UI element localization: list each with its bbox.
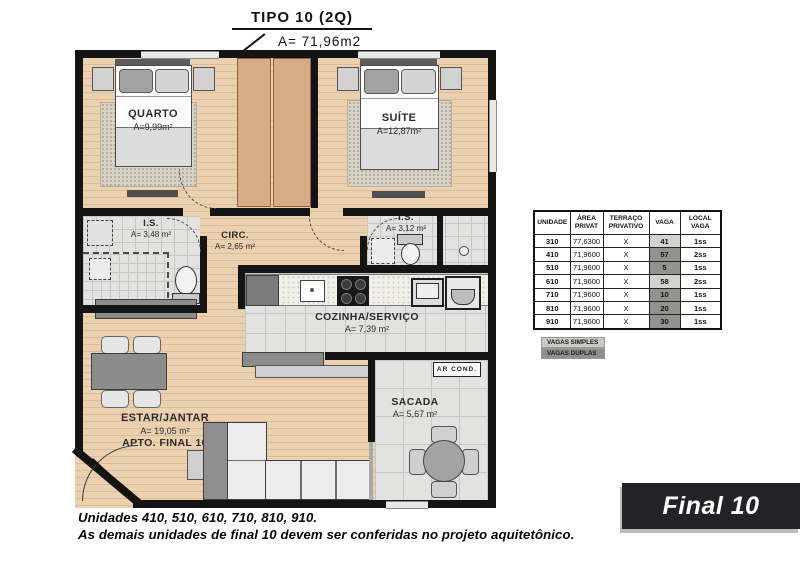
wall-balcony-left (368, 360, 375, 442)
dining-table (91, 353, 167, 390)
washing-machine (445, 276, 481, 310)
floor-drain (459, 246, 469, 256)
col-local: LOCAL VAGA (680, 211, 721, 235)
note-line-2: As demais unidades de final 10 devem ser… (78, 526, 574, 543)
shaft-wall (437, 210, 443, 265)
window-suite (358, 51, 440, 59)
room-label-sacada: SACADA A= 5,67 m² (391, 396, 438, 420)
bed-bench (127, 190, 178, 197)
note-line-1: Unidades 410, 510, 610, 710, 810, 910. (78, 509, 574, 526)
wall-left (75, 50, 83, 452)
bed-sheet-line (116, 96, 191, 97)
wall-bath-left-side (200, 236, 207, 313)
kitchen-cabinet (246, 275, 279, 306)
bed-bench (372, 191, 425, 198)
dining-chair (133, 390, 161, 408)
tv-stand-shelf (255, 365, 375, 378)
table-row: 610 71,9600 X 58 2ss (534, 275, 721, 288)
wardrobe (237, 58, 271, 207)
balcony-chair (431, 481, 457, 498)
col-terraco: TERRAÇO PRIVATIVO (603, 211, 649, 235)
wall-bath-left-bottom (83, 305, 207, 313)
table-row: 910 71,9600 X 30 1ss (534, 315, 721, 329)
nightstand (92, 67, 114, 91)
bed-sheet-line (361, 98, 438, 99)
stove (337, 276, 369, 306)
wall-closet-suite (311, 58, 318, 208)
laundry-tank (411, 278, 444, 307)
window-quarto (141, 51, 219, 59)
pillow (119, 69, 153, 93)
kitchen-sink (300, 280, 325, 302)
col-unidade: UNIDADE (534, 211, 570, 235)
final-10-badge: Final 10 (622, 483, 800, 529)
units-table: UNIDADE ÁREA PRIVAT TERRAÇO PRIVATIVO VA… (533, 210, 722, 330)
sofa-arm (203, 422, 229, 500)
room-label-quarto: QUARTO A=9,99m² (128, 108, 178, 133)
window-balcony (386, 501, 428, 509)
wall-kitchen-left (238, 265, 245, 309)
wardrobe (273, 58, 311, 207)
sink-drain (310, 288, 314, 292)
pillow (401, 69, 436, 94)
balcony-table (423, 440, 465, 482)
wall-kitchen-top (238, 265, 488, 273)
table-row: 510 71,9600 X 5 1ss (534, 261, 721, 274)
dining-chair (133, 336, 161, 354)
floor-plan: QUARTO A=9,99m² SUÍTE A=12,87m² I.S. (75, 50, 496, 508)
footer-notes: Unidades 410, 510, 610, 710, 810, 910. A… (78, 509, 574, 544)
table-row: 410 71,9600 X 57 2ss (534, 248, 721, 261)
wall-kitchen-bottom (325, 352, 488, 360)
nightstand (193, 67, 215, 91)
sofa-cushions-vertical (227, 422, 267, 500)
window-suite-side (489, 100, 497, 172)
room-label-is-left: I.S. A= 3,48 m² (131, 218, 171, 240)
table-header-row: UNIDADE ÁREA PRIVAT TERRAÇO PRIVATIVO VA… (534, 211, 721, 235)
col-vaga: VAGA (649, 211, 680, 235)
nightstand (337, 67, 359, 91)
wall-bottom (133, 500, 496, 508)
pillow (364, 69, 399, 94)
toilet (401, 243, 420, 265)
balcony-sliding-door (369, 442, 373, 500)
floor-plan-sheet: TIPO 10 (2Q) A= 71,96m2 QUARTO A=9,99m² (0, 0, 800, 566)
wall-hall (210, 208, 310, 216)
shower-drain-box (89, 258, 111, 280)
col-area: ÁREA PRIVAT (570, 211, 603, 235)
room-label-circ: CIRC. A= 2,65 m² (215, 230, 255, 252)
bathroom-sink (87, 220, 113, 246)
dining-chair (101, 336, 129, 354)
table-row: 310 77,6300 X 41 1ss (534, 235, 721, 248)
wall-quarto-bath (83, 208, 183, 216)
ac-unit-label: AR COND. (433, 362, 481, 377)
legend-vagas-simples: VAGAS SIMPLES (541, 337, 605, 348)
table-row: 810 71,9600 X 20 1ss (534, 301, 721, 314)
toilet (175, 266, 197, 295)
nightstand (440, 67, 462, 90)
plan-title: TIPO 10 (2Q) (232, 9, 372, 30)
door-arc-suite (309, 216, 344, 251)
door-arc-quarto (179, 170, 216, 209)
wall-suite-bath (343, 208, 488, 216)
pillow (155, 69, 189, 93)
room-label-cozinha: COZINHA/SERVIÇO A= 7,39 m² (315, 311, 419, 335)
legend-vagas-duplas: VAGAS DUPLAS (541, 348, 605, 359)
table-row: 710 71,9600 X 10 1ss (534, 288, 721, 301)
dining-chair (101, 390, 129, 408)
room-label-suite: SUÍTE A=12,87m² (377, 112, 421, 137)
sofa-cushions-horizontal (265, 460, 372, 500)
